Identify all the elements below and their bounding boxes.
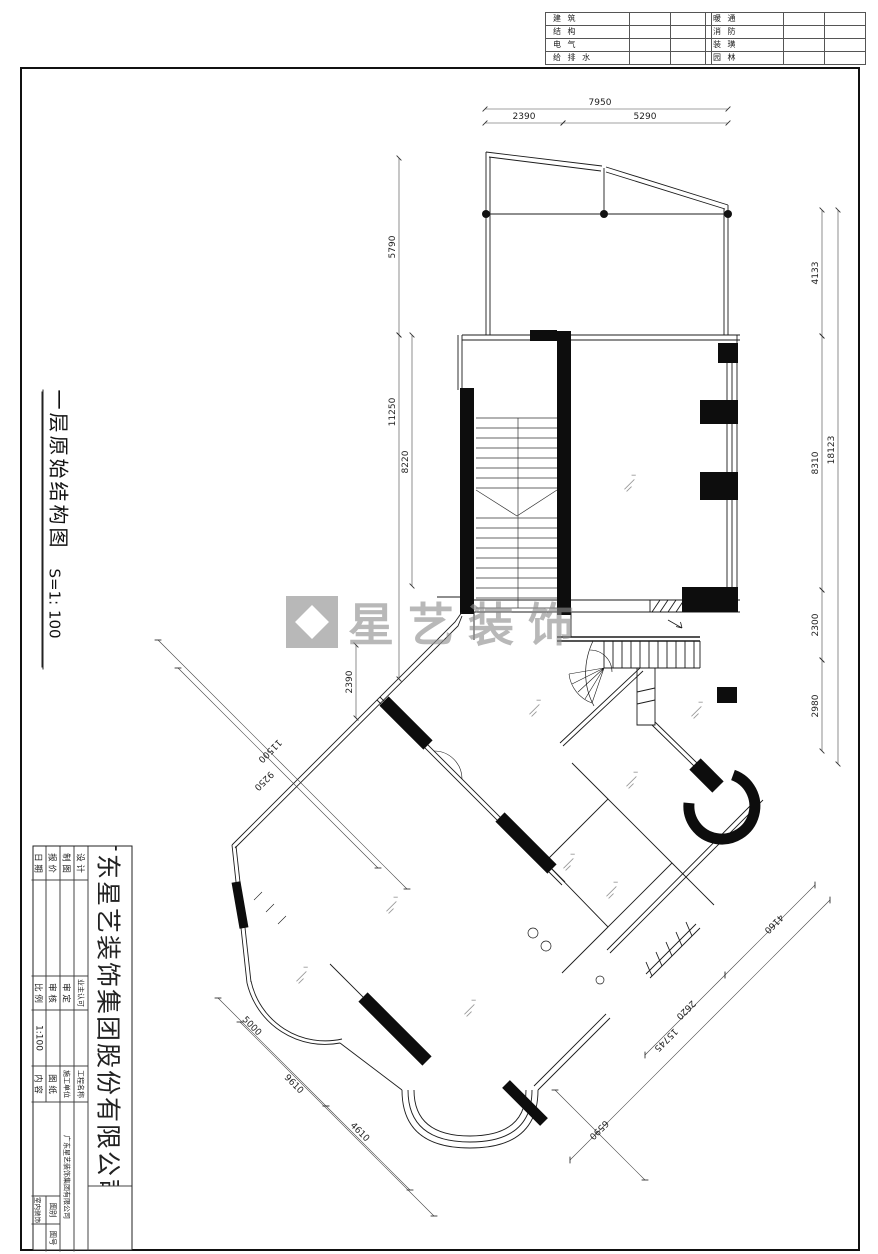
dimension-label: 6590: [587, 1118, 610, 1141]
field-value-drawing-category: 室内装饰: [31, 1196, 45, 1224]
watermark: 星艺装饰: [286, 589, 588, 655]
field-label-scale: 比 例: [31, 976, 45, 1010]
room-marker: [461, 998, 479, 1016]
drawing-sheet: 建 筑 结 构 电 气 给 排 水 暖 通 消 防 装 璜 园 林 一层原始结构…: [0, 0, 878, 1254]
field-label-quotation: 报 价: [45, 846, 59, 880]
field-label-approved: 审 定: [59, 976, 73, 1010]
lower-wing-structural: [236, 701, 755, 1122]
field-label-date: 日 期: [31, 846, 45, 880]
room-marker: [560, 852, 578, 870]
room-marker: [383, 895, 401, 913]
field-label-design: 设 计: [73, 846, 87, 880]
dimension-label: 8310: [811, 451, 821, 474]
field-value-date: [31, 880, 45, 976]
dimension: 2300: [811, 588, 824, 663]
dimension-label: 4160: [762, 912, 785, 935]
dimension-label: 7950: [589, 98, 612, 108]
dimension: 8220: [401, 333, 414, 589]
dimension-label: 9610: [282, 1073, 305, 1096]
dimension: 11500: [155, 640, 411, 889]
dimension-label: 15745: [652, 1026, 679, 1053]
field-value-drawing-content: [31, 1102, 59, 1196]
field-label-drawing-category: 图别: [45, 1196, 59, 1224]
dimension-label: 2390: [513, 112, 536, 122]
dimension-label: 5790: [388, 235, 398, 258]
dimension-label: 2390: [345, 670, 355, 693]
dimension: 6590: [552, 1090, 649, 1180]
dimension-label: 2300: [811, 613, 821, 636]
dimension-label: 18123: [827, 436, 837, 465]
field-value-reviewed: [45, 1010, 59, 1066]
field-label-builder: 施工单位: [59, 1066, 73, 1102]
field-label-drawing-number: 图号: [45, 1224, 59, 1251]
dimension-label: 5290: [634, 112, 657, 122]
field-value-quotation: [45, 880, 59, 976]
watermark-text: 星艺装饰: [348, 589, 588, 655]
field-value-drafting: [59, 880, 73, 976]
room-marker: [623, 770, 641, 788]
dimension-label: 2980: [811, 694, 821, 717]
dimension-label: 5000: [240, 1015, 263, 1038]
dimension: 8310: [811, 334, 824, 593]
field-value-design: [73, 880, 87, 976]
dimension: 4133: [811, 208, 824, 339]
field-label-owner-approval: 业主认可: [73, 976, 87, 1010]
dimension: 4160: [725, 882, 815, 979]
field-label-drafting: 制 图: [59, 846, 73, 880]
dimension: 7950: [483, 98, 731, 111]
dimension-label: 4133: [811, 262, 821, 285]
lower-wing-walls: [232, 612, 763, 1148]
field-value-drawing-number: [31, 1224, 45, 1251]
dimension: 5290: [561, 112, 731, 125]
title-block: 广东星艺装饰集团股份有限公司 设 计 制 图 报 价 日 期 业主认可 审 定 …: [32, 845, 132, 1250]
room-marker: [621, 473, 639, 491]
staircase: [476, 418, 557, 608]
dimension-label: 2620: [674, 998, 697, 1021]
room-marker: [526, 698, 544, 716]
field-value-approved: [59, 1010, 73, 1066]
dimension: 2390: [483, 112, 566, 125]
company-name: 广东星艺装饰集团股份有限公司: [87, 846, 131, 1186]
room-marker: [293, 965, 311, 983]
field-label-project-name: 工程名称: [73, 1066, 87, 1102]
empty-cell: [87, 1186, 131, 1250]
field-label-reviewed: 审 核: [45, 976, 59, 1010]
dimension: 5790: [388, 156, 401, 338]
dimension-label: 8220: [401, 450, 411, 473]
room-marker: [603, 880, 621, 898]
field-value-scale: 1:100: [31, 1010, 45, 1066]
dimension: 2980: [811, 658, 824, 754]
dimension-label: 11250: [388, 397, 398, 426]
dimension-lines: 7950239052904133831023002980181235790822…: [155, 98, 841, 1216]
field-label-content: 内 容: [31, 1066, 45, 1102]
room-markers: [293, 473, 706, 1016]
terrace-walls: [486, 152, 728, 335]
dimension: 5000: [215, 998, 330, 1106]
dimension-label: 11500: [256, 737, 284, 765]
field-value-owner-approval: [73, 1010, 87, 1066]
dimension: 18123: [827, 208, 840, 767]
field-label-drawing: 图 纸: [45, 1066, 59, 1102]
field-value-builder: 广东星艺装饰集团有限公司: [59, 1102, 73, 1251]
dimension: 9250: [175, 668, 382, 868]
watermark-logo-icon: [286, 596, 338, 648]
upper-block-walls: [437, 335, 740, 612]
dimension-label: 9250: [252, 769, 275, 792]
field-value-project-name: [73, 1102, 87, 1251]
dimension-label: 4610: [348, 1121, 371, 1144]
room-marker: [688, 700, 706, 718]
